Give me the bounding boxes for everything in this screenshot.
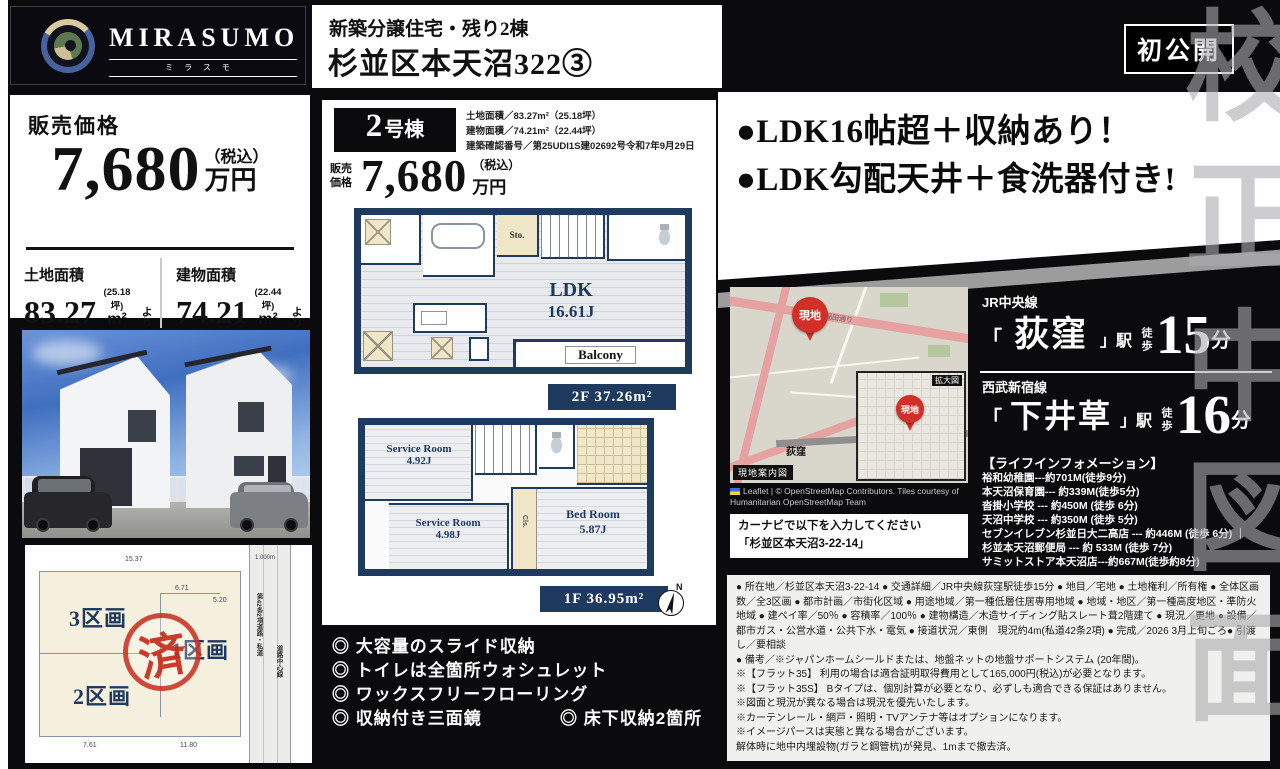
bed-room-name: Bed Room — [543, 507, 643, 522]
life-info-item: 裕和幼稚園---約701M(徒歩9分) — [982, 471, 1246, 485]
life-info-list: 裕和幼稚園---約701M(徒歩9分) 本天沼保育園--- 約339M(徒歩5分… — [982, 471, 1246, 569]
inset-pin-icon: 現地 — [896, 395, 924, 431]
compass-icon: N — [658, 584, 692, 618]
unit-number-box: 2 号棟 — [334, 108, 456, 152]
header-subtitle: 新築分譲住宅・残り2棟 — [329, 14, 529, 41]
stairs-2f — [541, 215, 605, 259]
lot-2-label: 2区画 — [73, 679, 131, 711]
access-divider — [980, 371, 1272, 373]
building-area-label: 建物面積 — [176, 264, 304, 285]
land-area-value: 83.27 — [24, 296, 96, 328]
stove-icon — [469, 337, 489, 361]
toilet-1f — [539, 425, 575, 469]
divider — [26, 247, 294, 250]
details-note: ※カーテンレール・網戸・照明・TVアンテナ等はオプションになります。 — [736, 712, 1261, 727]
building-area-unit: m² — [250, 312, 286, 328]
area-2f-box: 2F 37.26m² — [548, 384, 676, 410]
ldk-name: LDK — [511, 279, 631, 302]
dim-right: 1.000m — [255, 555, 275, 561]
inset-pin-label: 現地 — [896, 395, 924, 423]
life-info-title: 【ライフインフォメーション】 — [982, 453, 1163, 472]
spec-land: 土地面積／83.27m²（25.18坪） — [466, 109, 695, 124]
bracket-close-1: 」駅 — [1100, 327, 1132, 357]
closet-label: Cls. — [521, 515, 528, 528]
road-center-label: 道路中心線 — [273, 645, 283, 678]
details-paragraph: ● 所在地／杉並区本天沼3-22-14 ● 交通詳細／JR中央線荻窪駅徒歩15分… — [736, 581, 1261, 654]
bed-room: Cls. Bed Room 5.87J — [511, 487, 647, 569]
dim-top: 15.37 — [125, 556, 143, 563]
service-room-1: Service Room 4.92J — [365, 425, 473, 501]
building-area-value: 74.21 — [176, 296, 248, 328]
bathtub-icon — [431, 223, 485, 249]
service-room-1-name: Service Room — [365, 443, 473, 455]
bracket-open-1: 「 — [982, 322, 1002, 357]
building-area-suffix: より — [288, 306, 304, 328]
ldk-size: 16.61J — [511, 302, 631, 322]
highlight-line-1: ●LDK16帖超＋収納あり！ — [736, 104, 1131, 152]
price-tax-note: （税込） — [204, 143, 268, 167]
navi-instruction: カーナビで以下を入力してください — [738, 518, 960, 536]
life-info-item: サミットストア本天沼店---約667M(徒歩約8分) — [982, 555, 1246, 569]
storage-icon-2f — [363, 331, 393, 361]
life-info-item: 杉並本天沼郵便局 --- 約 533M (徒歩 7分) — [982, 541, 1246, 555]
details-note: 解体時に地中内埋設物(ガラと鋼管杭)が発見、1mまで撤去済。 — [736, 741, 1261, 756]
building-area-tsubo: (22.44坪) — [250, 287, 286, 312]
navi-address: 「杉並区本天沼3-22-14」 — [738, 536, 960, 554]
kitchen-counter — [413, 303, 487, 333]
flyer-page: MIRASUMO ミラスモ 新築分譲住宅・残り2棟 杉並区本天沼322③ 初公開… — [0, 0, 1280, 769]
life-info-item: 沓掛小学校 --- 約450M (徒歩 6分) — [982, 499, 1246, 513]
washroom-2f — [361, 215, 421, 265]
header-title: 杉並区本天沼322③ — [328, 39, 593, 83]
station-row-2: 「 下井草 」駅 徒歩 16 分 — [982, 391, 1251, 437]
feature-item-3: ◎ ワックスフリーフローリング — [332, 680, 588, 705]
entrance-1f — [577, 425, 647, 485]
unit-suffix: 号棟 — [384, 113, 424, 142]
map-inset-label: 拡大図 — [932, 375, 962, 386]
map-station-label: 荻窪 — [786, 443, 806, 458]
walk-minutes-2: 16 — [1176, 392, 1231, 437]
header-title-box: 新築分譲住宅・残り2棟 杉並区本天沼322③ — [312, 5, 722, 88]
floorplan-2f: Sto. LDK 16.61J Balcony — [354, 208, 692, 374]
balcony-label: Balcony — [565, 346, 636, 364]
attribution-line-2: Humanitarian OpenStreetMap Team — [730, 497, 970, 508]
price-panel: 販売価格 7,680 （税込） 万円 土地面積 83.27 (25.18坪) m… — [10, 95, 310, 318]
location-pin-label: 現地 — [792, 297, 828, 333]
bathroom-2f — [423, 215, 495, 277]
dim-mid2: 5.20 — [213, 597, 227, 604]
brand-name: MIRASUMO — [109, 23, 299, 53]
dim-mid1: 6.71 — [175, 585, 189, 592]
brand-logo-box: MIRASUMO ミラスモ — [10, 6, 306, 85]
toilet-2f — [607, 215, 685, 261]
plan-specs: 土地面積／83.27m²（25.18坪） 建物面積／74.21m²（22.44坪… — [466, 109, 695, 155]
feature-item-2: ◎ トイレは全箇所ウォシュレット — [332, 656, 607, 681]
bracket-close-2: 」駅 — [1120, 407, 1152, 437]
ldk-label: LDK 16.61J — [511, 279, 631, 322]
brand-name-kana: ミラスモ — [109, 59, 297, 77]
unit-number: 2 — [366, 108, 383, 145]
highlight-line-2: ●LDK勾配天井＋食洗器付き! — [736, 152, 1176, 200]
spec-building: 建物面積／74.21m²（22.44坪） — [466, 124, 695, 139]
feature-item-1: ◎ 大容量のスライド収納 — [332, 632, 536, 657]
storage-2f: Sto. — [497, 215, 539, 257]
plan-price-amount: 7,680 — [361, 154, 467, 199]
dim-bottom2: 11.80 — [180, 742, 197, 749]
plan-price-unit: 万円 — [472, 173, 520, 198]
land-area-unit: m² — [98, 312, 136, 328]
map-guide-label: 現地案内図 — [733, 465, 793, 480]
lot-3-label: 3区画 — [69, 601, 127, 633]
details-note: ※イメージパースは実態と異なる場合がございます。 — [736, 726, 1261, 741]
land-area-cell: 土地面積 83.27 (25.18坪) m² より — [10, 258, 160, 328]
walk-minutes-1: 15 — [1156, 312, 1211, 357]
attribution-line-1: Leaflet | © OpenStreetMap Contributors. … — [743, 486, 959, 496]
walk-label-1: 徒歩 — [1138, 327, 1154, 353]
details-note: ※【フラット35S】 Bタイプは、個別計算が必要となり、必ずしも適合できる保証は… — [736, 683, 1261, 698]
feature-item-5: ◎ 床下収納2箇所 — [560, 704, 702, 729]
area-1f-box: 1F 36.95m² — [540, 586, 668, 612]
bed-room-size: 5.87J — [543, 522, 643, 537]
page-left-margin — [0, 0, 8, 769]
stairs-1f — [475, 425, 537, 475]
land-area-suffix: より — [138, 306, 154, 328]
land-area-label: 土地面積 — [24, 264, 154, 285]
location-map: 早稲田通り 荻窪 現地 拡大図 現地 現地案内図 — [730, 287, 968, 483]
life-info-item: セブンイレブン杉並日大二高店 --- 約446M (徒歩 6分) ｜ — [982, 527, 1246, 541]
price-unit: 万円 — [204, 167, 268, 194]
plan-price-label: 販売価格 — [330, 163, 356, 191]
floorplan-panel: 2 号棟 土地面積／83.27m²（25.18坪） 建物面積／74.21m²（2… — [322, 100, 716, 625]
plan-price-row: 販売価格 7,680 （税込） 万円 — [330, 154, 520, 199]
floorplan-1f: Service Room 4.92J Service Room 4.98J Cl… — [358, 418, 654, 576]
service-room-2-name: Service Room — [389, 517, 507, 529]
life-info-item: 天沼中学校 --- 約350M (徒歩 5分) — [982, 513, 1246, 527]
exterior-render-image — [22, 330, 310, 538]
price-amount: 7,680 — [51, 137, 200, 201]
land-area-tsubo: (25.18坪) — [98, 287, 136, 312]
balcony: Balcony — [513, 339, 685, 367]
plan-price-tax: （税込） — [472, 156, 520, 173]
building-area-cell: 建物面積 74.21 (22.44坪) m² より — [160, 258, 310, 328]
minutes-unit-2: 分 — [1231, 404, 1251, 437]
bracket-open-2: 「 — [982, 402, 1002, 437]
service-room-2: Service Room 4.98J — [389, 503, 509, 569]
details-note: ※図面と現況が異なる場合は現況を優先いたします。 — [736, 697, 1261, 712]
closet-1f: Cls. — [513, 489, 537, 569]
minutes-unit-1: 分 — [1211, 324, 1231, 357]
dim-bottom1: 7.61 — [83, 742, 97, 749]
spec-permit: 建築確認番号／第25UDI1S建02692号令和7年9月29日 — [466, 139, 695, 154]
location-pin-icon: 現地 — [792, 297, 828, 341]
life-info-item: 本天沼保育園--- 約339M(徒歩5分) — [982, 485, 1246, 499]
property-details-box: ● 所在地／杉並区本天沼3-22-14 ● 交通詳細／JR中央線荻窪駅徒歩15分… — [727, 575, 1270, 761]
map-attribution: Leaflet | © OpenStreetMap Contributors. … — [730, 486, 970, 508]
kitchen-storage-icon — [431, 337, 453, 359]
lot-layout-diagram: 3区画 2区画 1区画 済 第42条2項道路・私道 道路中心線 15.37 1.… — [25, 545, 312, 763]
washer-icon — [365, 219, 391, 245]
service-room-1-size: 4.92J — [365, 455, 473, 467]
render-car — [230, 482, 308, 532]
station-row-1: 「 荻窪 」駅 徒歩 15 分 — [982, 306, 1231, 357]
brand-logo-icon — [41, 19, 95, 73]
station-name-2: 下井草 — [1010, 391, 1112, 437]
details-note: ● 備考／※ジャパンホームシールドまたは、地盤ネットの地盤サポートシステム (2… — [736, 654, 1261, 669]
render-minivan — [24, 476, 112, 532]
station-name-1: 荻窪 — [1014, 306, 1088, 357]
price-row: 7,680 （税込） 万円 — [10, 137, 310, 201]
details-note: ※【フラット35】 利用の場合は適合証明取得費用として165,000円(税込)が… — [736, 668, 1261, 683]
leaflet-flag-icon — [730, 488, 740, 495]
walk-label-2: 徒歩 — [1158, 407, 1174, 433]
road-type-label: 第42条2項道路・私道 — [253, 593, 263, 656]
car-navi-box: カーナビで以下を入力してください 「杉並区本天沼3-22-14」 — [730, 514, 968, 558]
first-release-badge: 初公開 — [1124, 24, 1234, 74]
service-room-2-size: 4.98J — [389, 529, 507, 541]
feature-item-4: ◎ 収納付き三面鏡 — [332, 704, 482, 729]
map-inset: 拡大図 現地 — [856, 371, 966, 481]
